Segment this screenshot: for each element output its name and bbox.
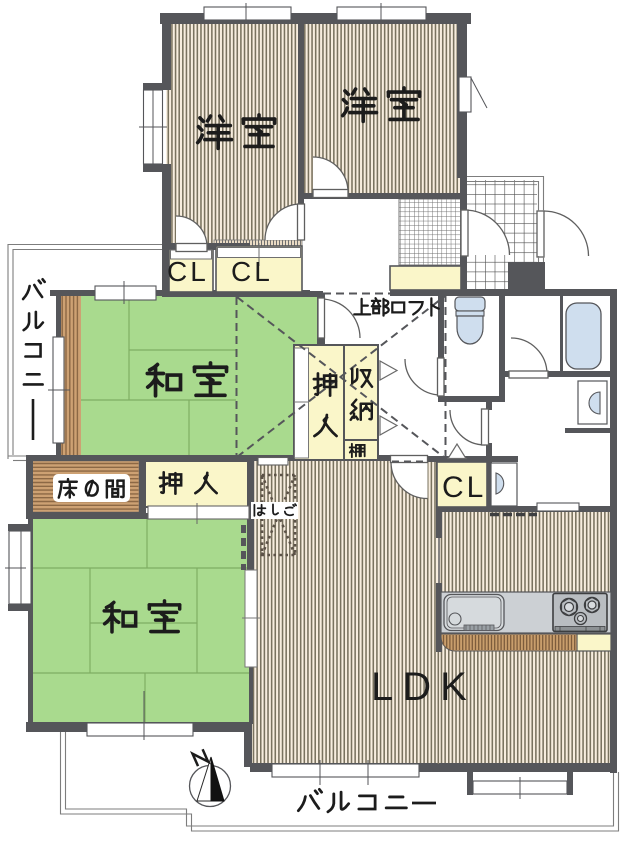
svg-text:CL: CL [231, 256, 273, 287]
svg-text:CL: CL [167, 256, 209, 287]
svg-text:LDK: LDK [371, 665, 476, 709]
svg-text:CL: CL [442, 471, 486, 504]
